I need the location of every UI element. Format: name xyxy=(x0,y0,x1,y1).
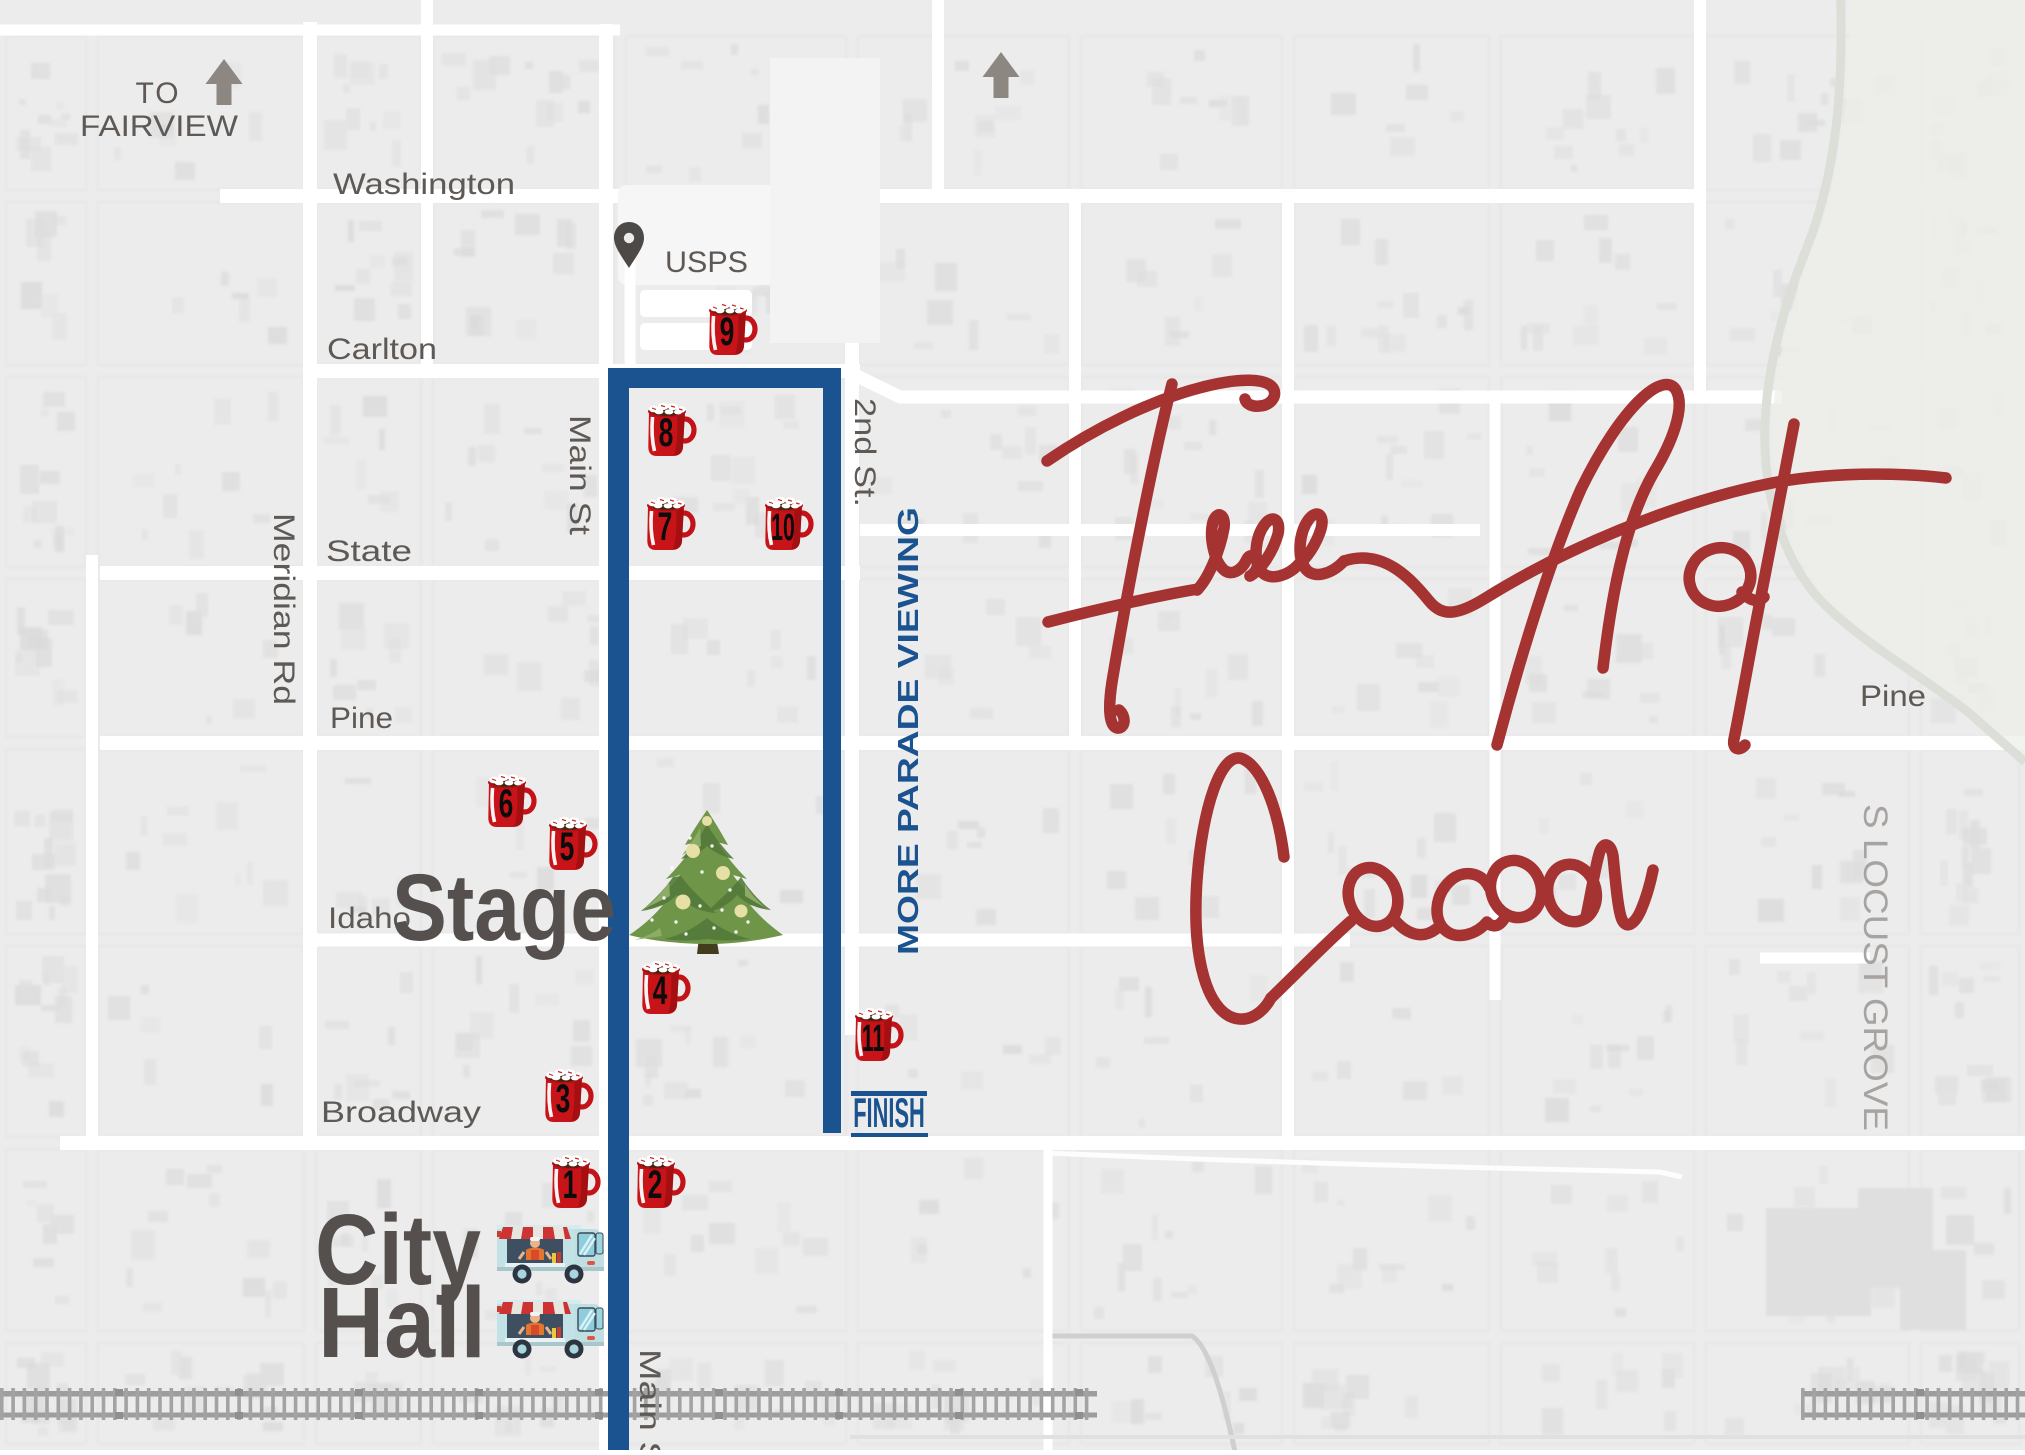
svg-text:Pine: Pine xyxy=(330,702,393,735)
svg-text:6: 6 xyxy=(499,782,514,827)
svg-text:USPS: USPS xyxy=(665,246,748,279)
svg-text:FAIRVIEW: FAIRVIEW xyxy=(80,110,239,143)
svg-text:Washington: Washington xyxy=(333,168,515,201)
svg-text:Stage: Stage xyxy=(392,855,616,961)
svg-text:MORE PARADE VIEWING: MORE PARADE VIEWING xyxy=(893,507,925,955)
svg-text:Carlton: Carlton xyxy=(327,333,437,366)
svg-text:TO: TO xyxy=(135,77,180,110)
svg-text:4: 4 xyxy=(653,969,668,1014)
svg-text:7: 7 xyxy=(658,505,673,550)
svg-text:11: 11 xyxy=(862,1016,884,1059)
svg-text:2: 2 xyxy=(648,1163,663,1208)
svg-text:10: 10 xyxy=(771,505,795,548)
svg-text:5: 5 xyxy=(560,825,575,870)
svg-text:3: 3 xyxy=(556,1077,571,1122)
svg-text:Meridian Rd: Meridian Rd xyxy=(267,513,300,705)
svg-text:Pine: Pine xyxy=(1860,680,1926,713)
svg-text:Main St: Main St xyxy=(563,415,596,536)
svg-text:8: 8 xyxy=(659,411,674,456)
svg-text:Hall: Hall xyxy=(318,1267,486,1379)
svg-text:FINISH: FINISH xyxy=(853,1091,925,1137)
svg-text:Main St: Main St xyxy=(633,1349,666,1450)
svg-text:Broadway: Broadway xyxy=(321,1096,481,1129)
svg-text:S LOCUST GROVE: S LOCUST GROVE xyxy=(1856,804,1894,1131)
svg-text:State: State xyxy=(326,535,412,568)
svg-text:9: 9 xyxy=(720,310,735,355)
svg-text:2nd St.: 2nd St. xyxy=(848,398,881,507)
svg-text:1: 1 xyxy=(563,1163,578,1208)
